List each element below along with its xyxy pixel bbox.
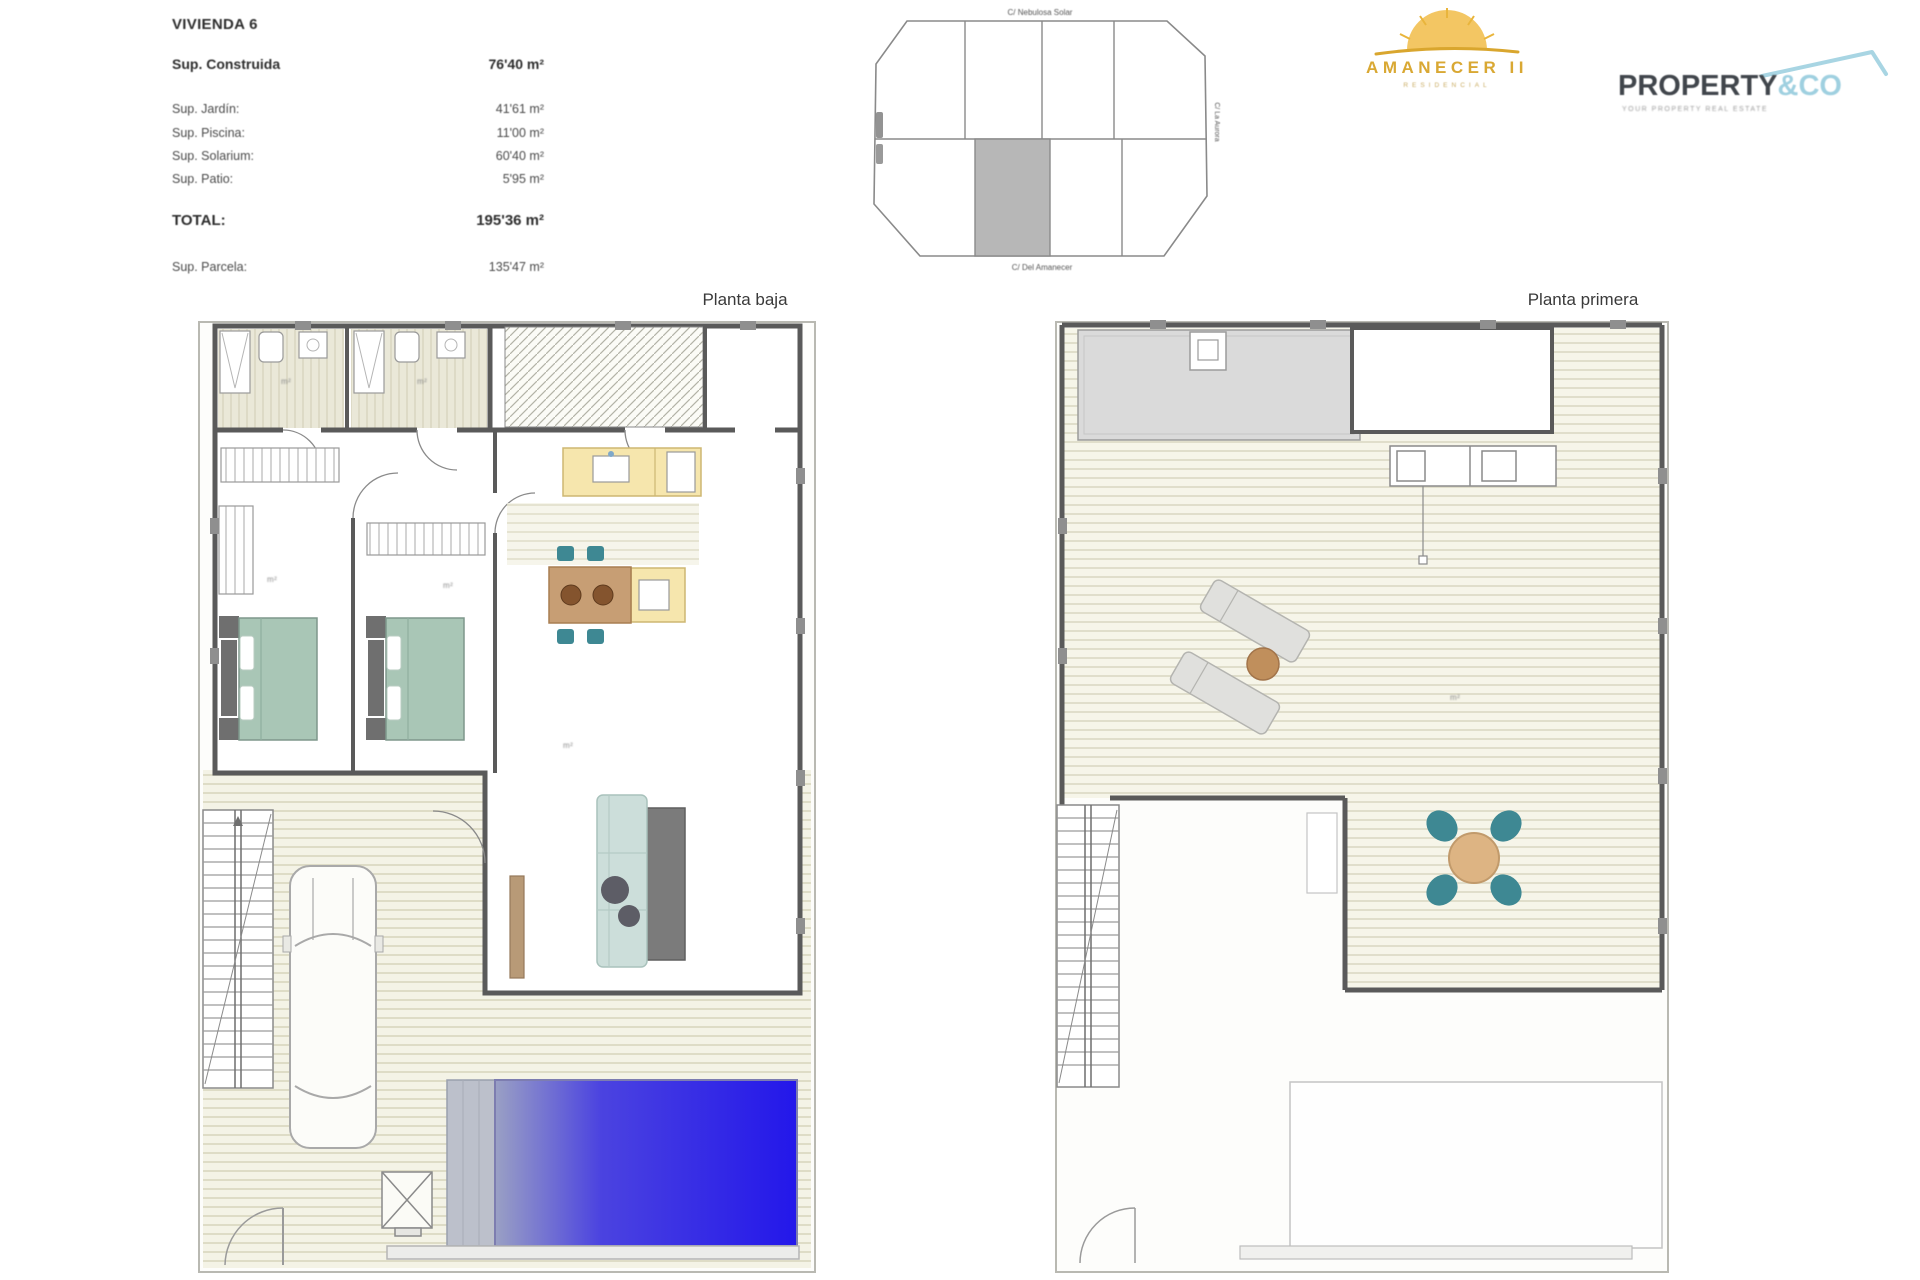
jardin-value: 41'61 m² — [496, 102, 544, 116]
total-label: TOTAL: — [172, 212, 226, 229]
room-area-label: m² — [417, 377, 427, 386]
selected-plot — [975, 139, 1050, 256]
patio-value: 5'95 m² — [503, 172, 544, 186]
outdoor-shower — [382, 1172, 432, 1236]
piscina-label: Sup. Piscina: — [172, 126, 245, 140]
car — [283, 866, 383, 1148]
street-top-label: C/ Nebulosa Solar — [1008, 8, 1073, 17]
bed-1 — [219, 616, 317, 740]
site-plan: C/ Nebulosa Solar C/ Del Amanecer C/ La … — [862, 4, 1222, 276]
tv-unit — [647, 808, 685, 960]
stair-landing — [1307, 813, 1337, 893]
first-floor-plan: m² — [1050, 318, 1675, 1280]
terrace-step-below — [1240, 1246, 1632, 1259]
area-summary: VIVIENDA 6 Sup. Construida 76'40 m² Sup.… — [172, 10, 544, 285]
page-title: VIVIENDA 6 — [172, 16, 258, 33]
room-area-label: m² — [281, 377, 291, 386]
swimming-pool — [495, 1080, 797, 1246]
entry-patio — [505, 327, 703, 427]
piscina-value: 11'00 m² — [497, 126, 544, 140]
street-bottom-label: C/ Del Amanecer — [1012, 263, 1073, 272]
amanecer-subtitle: RESIDENCIAL — [1328, 82, 1566, 89]
amanecer-name: AMANECER II — [1328, 58, 1566, 78]
property-co-logo: PROPERTY&CO YOUR PROPERTY REAL ESTATE — [1612, 46, 1898, 126]
sideboard — [510, 876, 524, 978]
property-suffix: &CO — [1778, 70, 1842, 102]
brochure-page: VIVIENDA 6 Sup. Construida 76'40 m² Sup.… — [0, 0, 1920, 1280]
street-left-mark — [876, 112, 883, 138]
total-value: 195'36 m² — [476, 212, 544, 229]
chimney — [1190, 332, 1226, 370]
exterior-stairs — [203, 810, 273, 1088]
solarium-value: 60'40 m² — [496, 149, 544, 163]
amanecer-logo: AMANECER II RESIDENCIAL — [1328, 6, 1566, 121]
property-tagline: YOUR PROPERTY REAL ESTATE — [1622, 106, 1768, 113]
construida-label: Sup. Construida — [172, 56, 280, 72]
bed-2 — [366, 616, 464, 740]
upper-room — [1352, 328, 1552, 432]
room-area-label: m² — [563, 741, 573, 750]
solarium-area-label: m² — [1450, 693, 1460, 702]
street-right-label: C/ La Aurora — [1213, 102, 1220, 141]
pool-deck — [447, 1080, 495, 1246]
construida-value: 76'40 m² — [489, 56, 544, 72]
pouf — [601, 876, 629, 904]
sink — [1397, 451, 1425, 481]
kitchen-sink — [593, 456, 629, 482]
ground-floor-title: Planta baja — [655, 290, 835, 310]
pergola — [1078, 330, 1360, 440]
jardin-label: Sup. Jardín: — [172, 102, 239, 116]
first-floor-title: Planta primera — [1478, 290, 1688, 310]
ground-floor-plan: m² m² m² m² m² — [195, 318, 820, 1280]
round-table — [1449, 833, 1499, 883]
solarium-label: Sup. Solarium: — [172, 149, 254, 163]
side-table — [1247, 648, 1279, 680]
room-area-label: m² — [443, 581, 453, 590]
patio-label: Sup. Patio: — [172, 172, 233, 186]
room-area-label: m² — [267, 575, 277, 584]
parcela-value: 135'47 m² — [489, 260, 544, 274]
parcela-label: Sup. Parcela: — [172, 260, 247, 274]
sun-icon — [1372, 6, 1522, 56]
terrace-step — [387, 1246, 799, 1259]
pool-below-outline — [1290, 1082, 1662, 1248]
stairs-down — [1057, 805, 1119, 1087]
property-name: PROPERTY&CO — [1618, 70, 1842, 103]
